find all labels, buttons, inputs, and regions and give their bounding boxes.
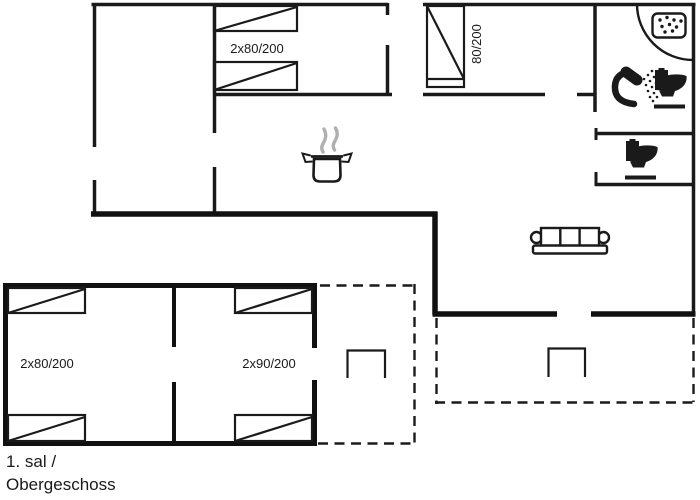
table-icon — [549, 349, 586, 378]
bed-icon — [235, 288, 312, 313]
bed-icon — [427, 6, 464, 87]
steam-icon — [333, 128, 337, 150]
bed-icon — [8, 288, 85, 313]
bed-icon — [214, 6, 297, 31]
floor-plan-drawing — [0, 0, 700, 500]
corner-shower-icon — [637, 4, 693, 60]
steam-icon — [322, 129, 326, 152]
bed-icon — [8, 415, 85, 441]
bed-size-label-top-middle-room: 80/200 — [469, 12, 485, 76]
toilet-icon — [654, 68, 687, 109]
bed-size-label-top-left-room: 2x80/200 — [214, 41, 300, 56]
floor-plan: 2x80/200 80/200 2x80/200 2x90/200 1. sal… — [0, 0, 700, 500]
floor-label: 1. sal / Obergeschoss — [6, 450, 116, 496]
bed-size-label-bottom-room-left: 2x80/200 — [4, 356, 90, 371]
toilet-icon — [625, 139, 658, 180]
bed-size-label-bottom-room-right: 2x90/200 — [226, 356, 312, 371]
cooking-pot-icon — [303, 128, 352, 182]
sofa-icon — [531, 228, 609, 254]
bed-icon — [214, 62, 297, 90]
table-icon — [348, 351, 386, 379]
bed-icon — [235, 415, 312, 441]
floor-label-line2: Obergeschoss — [6, 473, 116, 496]
floor-label-line1: 1. sal / — [6, 450, 116, 473]
